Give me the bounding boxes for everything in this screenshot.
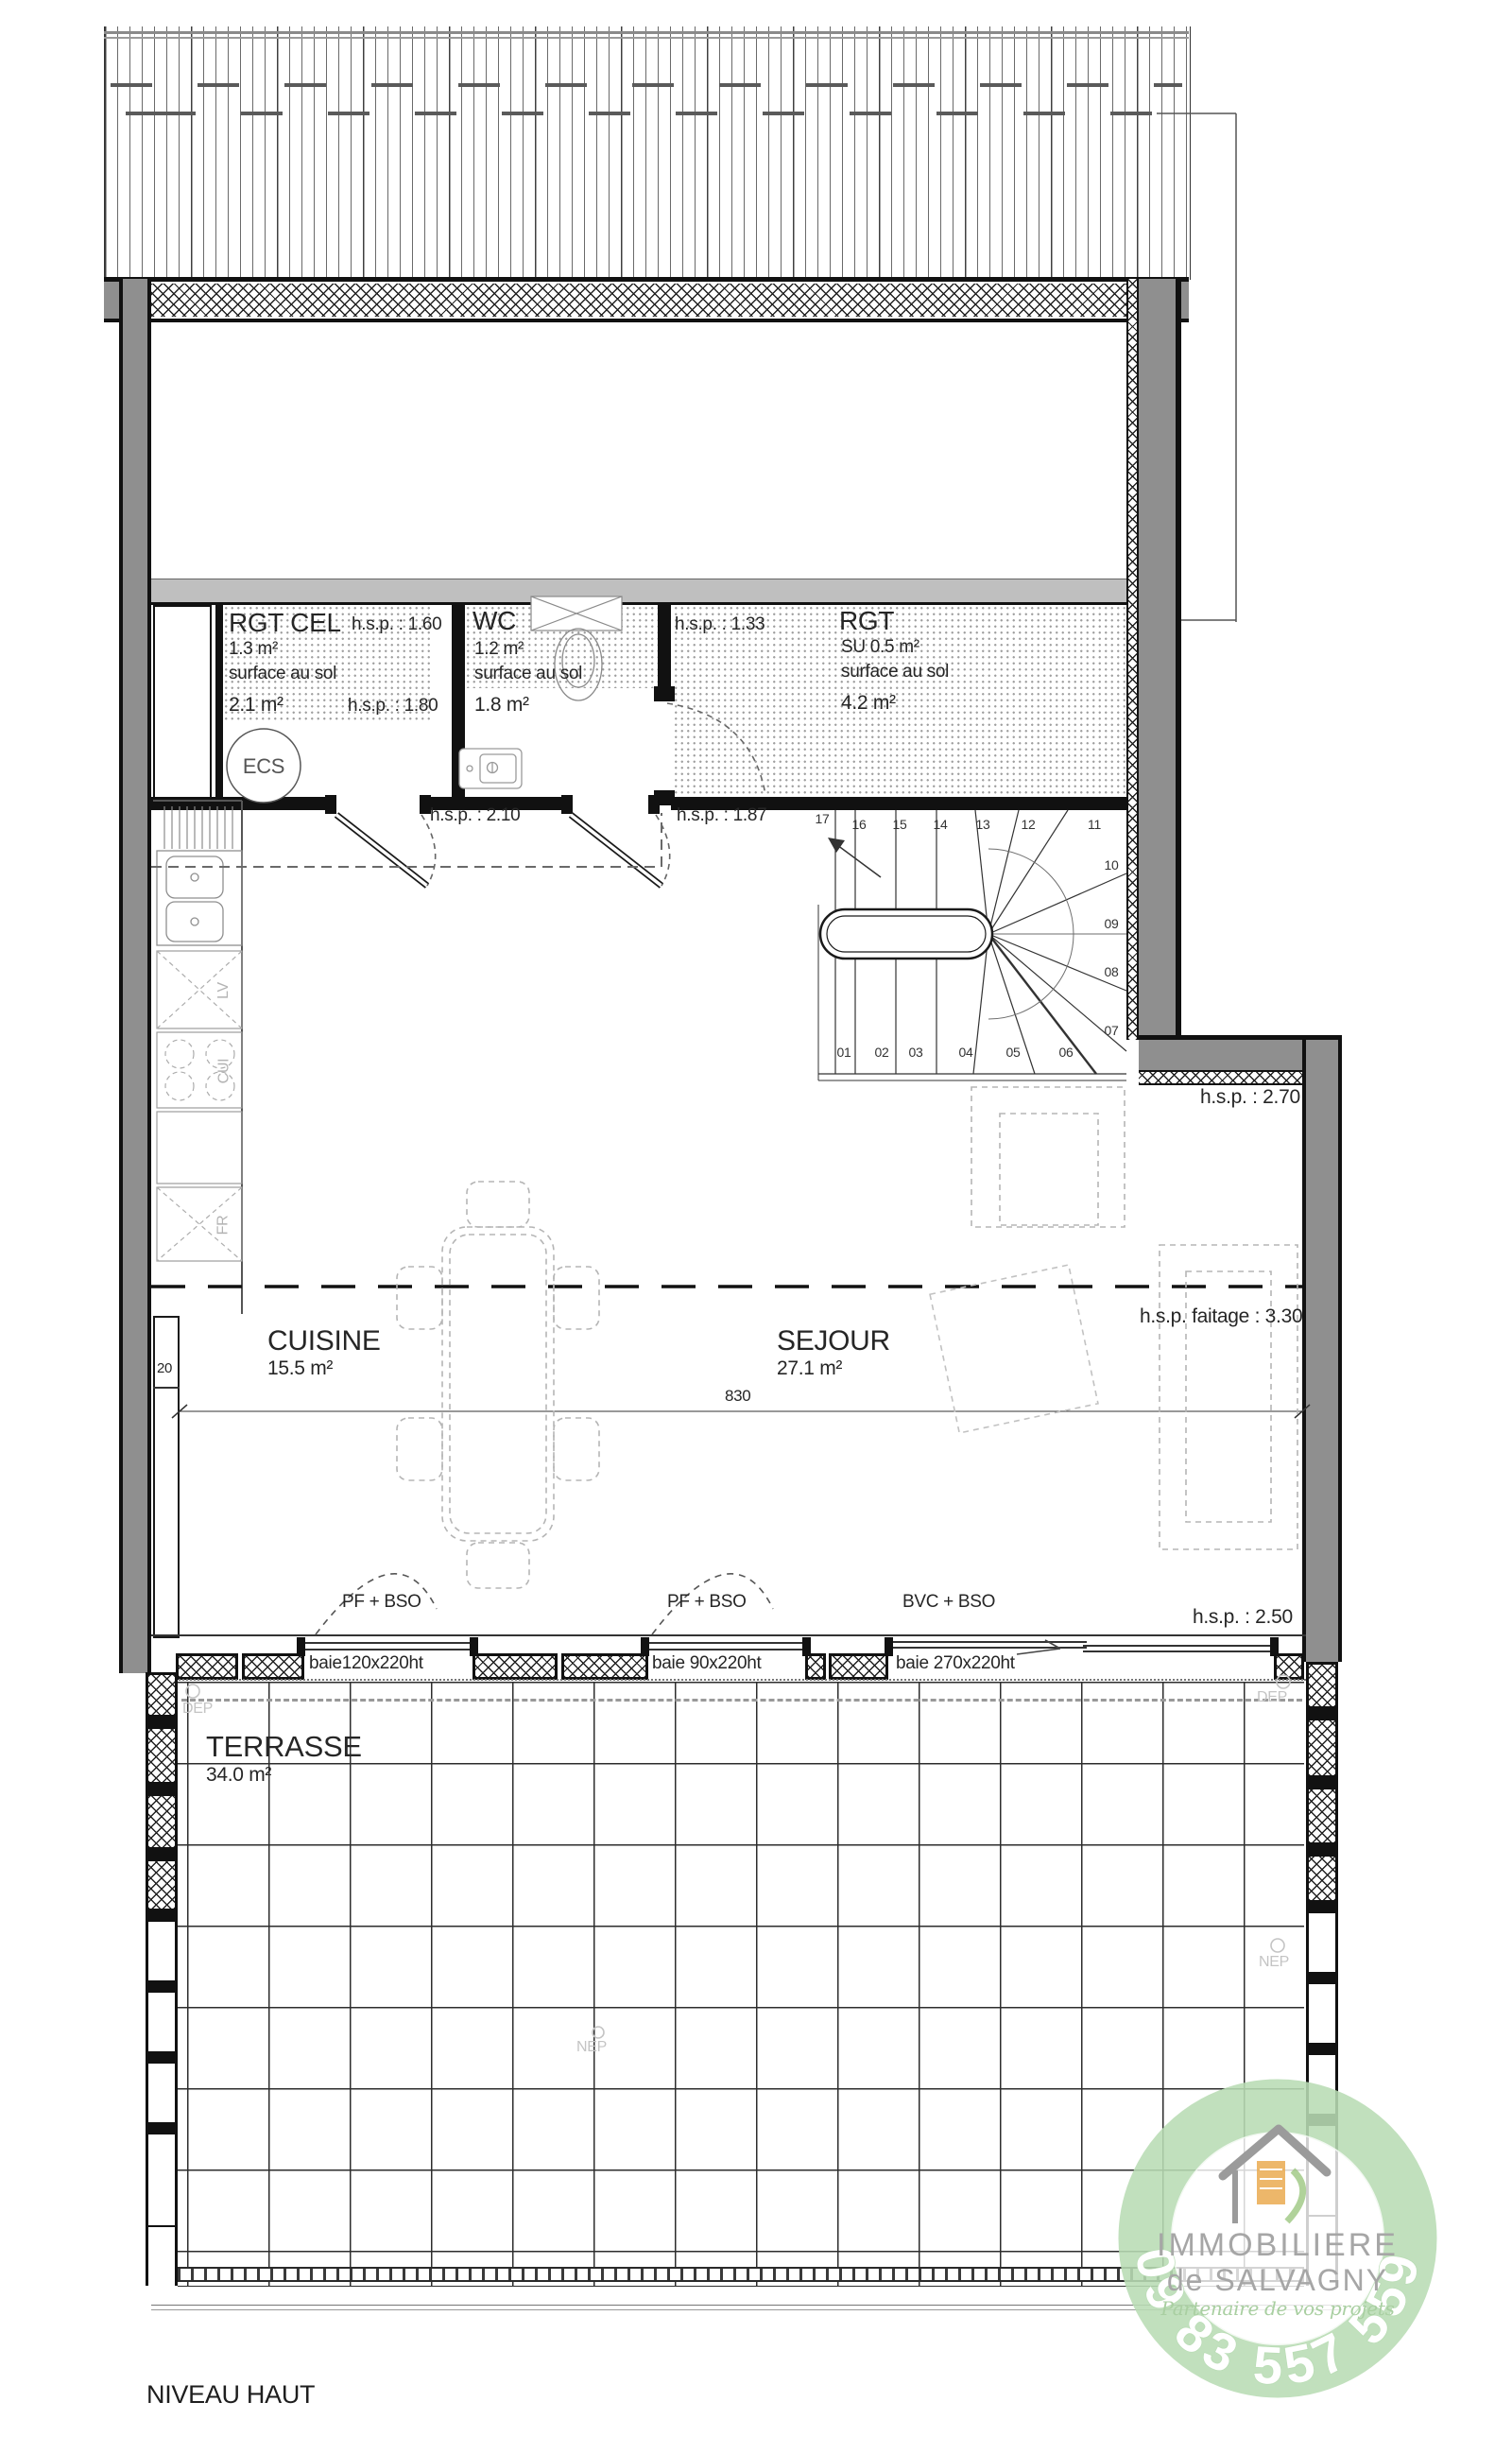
kitchen-lv-label: LV	[216, 982, 232, 999]
room-terrasse-area: 34.0 m²	[206, 1765, 271, 1785]
stair-num-5: 05	[1006, 1046, 1021, 1059]
hsp-250: h.s.p. : 2.50	[1193, 1607, 1293, 1627]
dimension-830-line	[172, 1405, 1310, 1418]
door-rgt	[667, 703, 765, 795]
dim-830: 830	[725, 1388, 750, 1404]
pf-bso-1: PF + BSO	[342, 1593, 421, 1611]
room-rgtcel-su: 1.3 m²	[229, 640, 278, 658]
wc-cistern	[531, 596, 622, 631]
logo-tagline: Partenaire de vos projets	[1160, 2299, 1394, 2318]
stair-num-6: 06	[1059, 1046, 1074, 1059]
room-wc-floor: 1.8 m²	[474, 695, 529, 715]
room-wc-su: 1.2 m²	[474, 640, 524, 658]
room-cuisine-name: CUISINE	[267, 1327, 381, 1356]
room-cuisine-area: 15.5 m²	[267, 1358, 333, 1378]
wc-basin	[459, 749, 522, 788]
room-wc-note: surface au sol	[474, 665, 582, 683]
kitchen-fr-label: FR	[215, 1216, 231, 1236]
slider-arrow	[1017, 1640, 1060, 1654]
room-rgt-hsp: h.s.p. : 1.33	[675, 615, 765, 633]
stair-num-3: 03	[909, 1046, 923, 1059]
floor-plan: 09 83 557 559 RGT CEL h.s.p. : 1.60 1.3 …	[0, 0, 1512, 2454]
logo-line1: IMMOBILIERE	[1157, 2229, 1399, 2261]
stair-num-16: 16	[852, 818, 867, 831]
baie-90: baie 90x220ht	[652, 1654, 761, 1672]
stair-num-1: 01	[837, 1046, 851, 1059]
dep-left: DEP	[182, 1702, 213, 1717]
room-sejour-name: SEJOUR	[777, 1327, 890, 1356]
room-terrasse-name: TERRASSE	[206, 1732, 362, 1761]
stair-num-15: 15	[893, 818, 907, 831]
logo-line2: de SALVAGNY	[1167, 2265, 1388, 2295]
staircase	[818, 810, 1126, 1080]
room-sejour-area: 27.1 m²	[777, 1358, 842, 1378]
room-rgtcel-hsp-top: h.s.p. : 1.60	[352, 615, 441, 633]
door-wc	[571, 815, 670, 886]
eave-lines	[1157, 113, 1236, 622]
nep-center: NEP	[576, 2040, 607, 2055]
room-rgtcel-hsp-bottom: h.s.p. : 1.80	[348, 697, 438, 715]
dep-right: DEP	[1257, 1690, 1287, 1705]
headroom-dashed-line	[151, 813, 661, 867]
stair-num-2: 02	[875, 1046, 889, 1059]
hsp-210: h.s.p. : 2.10	[430, 806, 520, 824]
baie-120: baie120x220ht	[309, 1654, 423, 1672]
stair-num-14: 14	[934, 818, 948, 831]
nep-right: NEP	[1259, 1955, 1289, 1970]
ecs-label: ECS	[243, 756, 284, 777]
door-rgtcel	[336, 815, 436, 886]
stair-num-13: 13	[976, 818, 990, 831]
room-rgt-floor: 4.2 m²	[841, 693, 896, 713]
stair-num-12: 12	[1022, 818, 1036, 831]
hsp-187: h.s.p. : 1.87	[677, 806, 766, 824]
bvc-bso: BVC + BSO	[902, 1593, 995, 1611]
pf-bso-2: PF + BSO	[667, 1593, 747, 1611]
kitchen-cabinet	[157, 1112, 242, 1184]
dim-20: 20	[157, 1361, 172, 1375]
room-rgt-name: RGT	[839, 608, 894, 634]
room-wc-name: WC	[472, 608, 516, 634]
kitchen-cui-label: CUI	[216, 1059, 232, 1084]
room-rgt-note: surface au sol	[841, 663, 949, 681]
baie-270: baie 270x220ht	[896, 1654, 1015, 1672]
stair-num-11: 11	[1088, 818, 1101, 831]
room-rgtcel-note: surface au sol	[229, 665, 336, 683]
room-rgtcel-name: RGT CEL	[229, 610, 341, 636]
hsp-faitage: h.s.p. faitage : 3.30	[1140, 1306, 1302, 1326]
stair-num-10: 10	[1105, 858, 1119, 872]
kitchen-sink	[157, 851, 242, 945]
stair-num-17: 17	[816, 812, 830, 825]
sheet-title: NIVEAU HAUT	[146, 2382, 315, 2408]
stair-num-8: 08	[1105, 965, 1119, 978]
hsp-270: h.s.p. : 2.70	[1200, 1087, 1300, 1107]
stair-num-7: 07	[1105, 1024, 1119, 1037]
stair-num-9: 09	[1105, 917, 1119, 930]
room-rgtcel-floor: 2.1 m²	[229, 695, 283, 715]
room-rgt-su: SU 0.5 m²	[841, 638, 919, 656]
stair-num-4: 04	[959, 1046, 973, 1059]
kitchen-counter	[153, 801, 242, 1314]
